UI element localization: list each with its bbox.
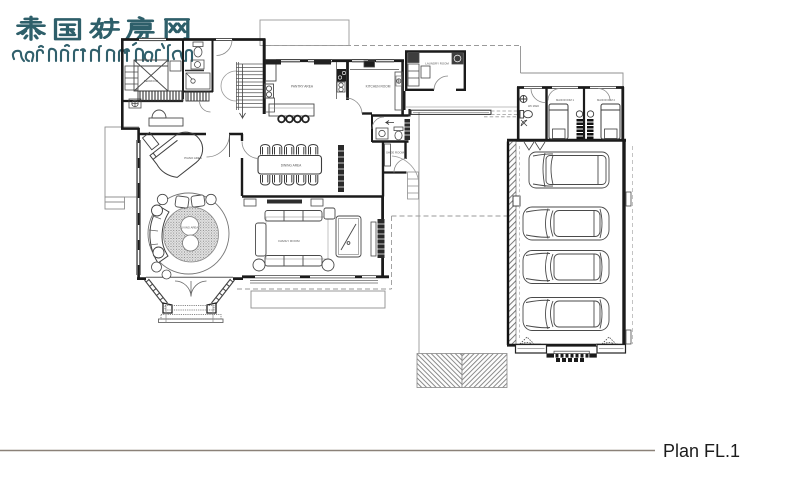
svg-text:Plan FL.1: Plan FL.1 bbox=[663, 441, 740, 461]
svg-text:MAID ROOM 2: MAID ROOM 2 bbox=[597, 98, 616, 102]
svg-text:FAMILY ROOM: FAMILY ROOM bbox=[278, 239, 300, 243]
svg-text:LAUNDRY ROOM: LAUNDRY ROOM bbox=[425, 62, 449, 66]
svg-text:LIVING AREA: LIVING AREA bbox=[181, 226, 199, 230]
svg-text:DINING AREA: DINING AREA bbox=[281, 164, 302, 168]
svg-text:SHOE ROOM: SHOE ROOM bbox=[386, 151, 405, 155]
svg-text:BEDROOM: BEDROOM bbox=[144, 79, 159, 83]
svg-text:PANTRY AREA: PANTRY AREA bbox=[291, 85, 314, 89]
svg-text:KITCHEN ROOM: KITCHEN ROOM bbox=[366, 85, 391, 89]
svg-text:WC MAID: WC MAID bbox=[528, 105, 539, 108]
svg-text:MAID ROOM 1: MAID ROOM 1 bbox=[556, 98, 575, 102]
